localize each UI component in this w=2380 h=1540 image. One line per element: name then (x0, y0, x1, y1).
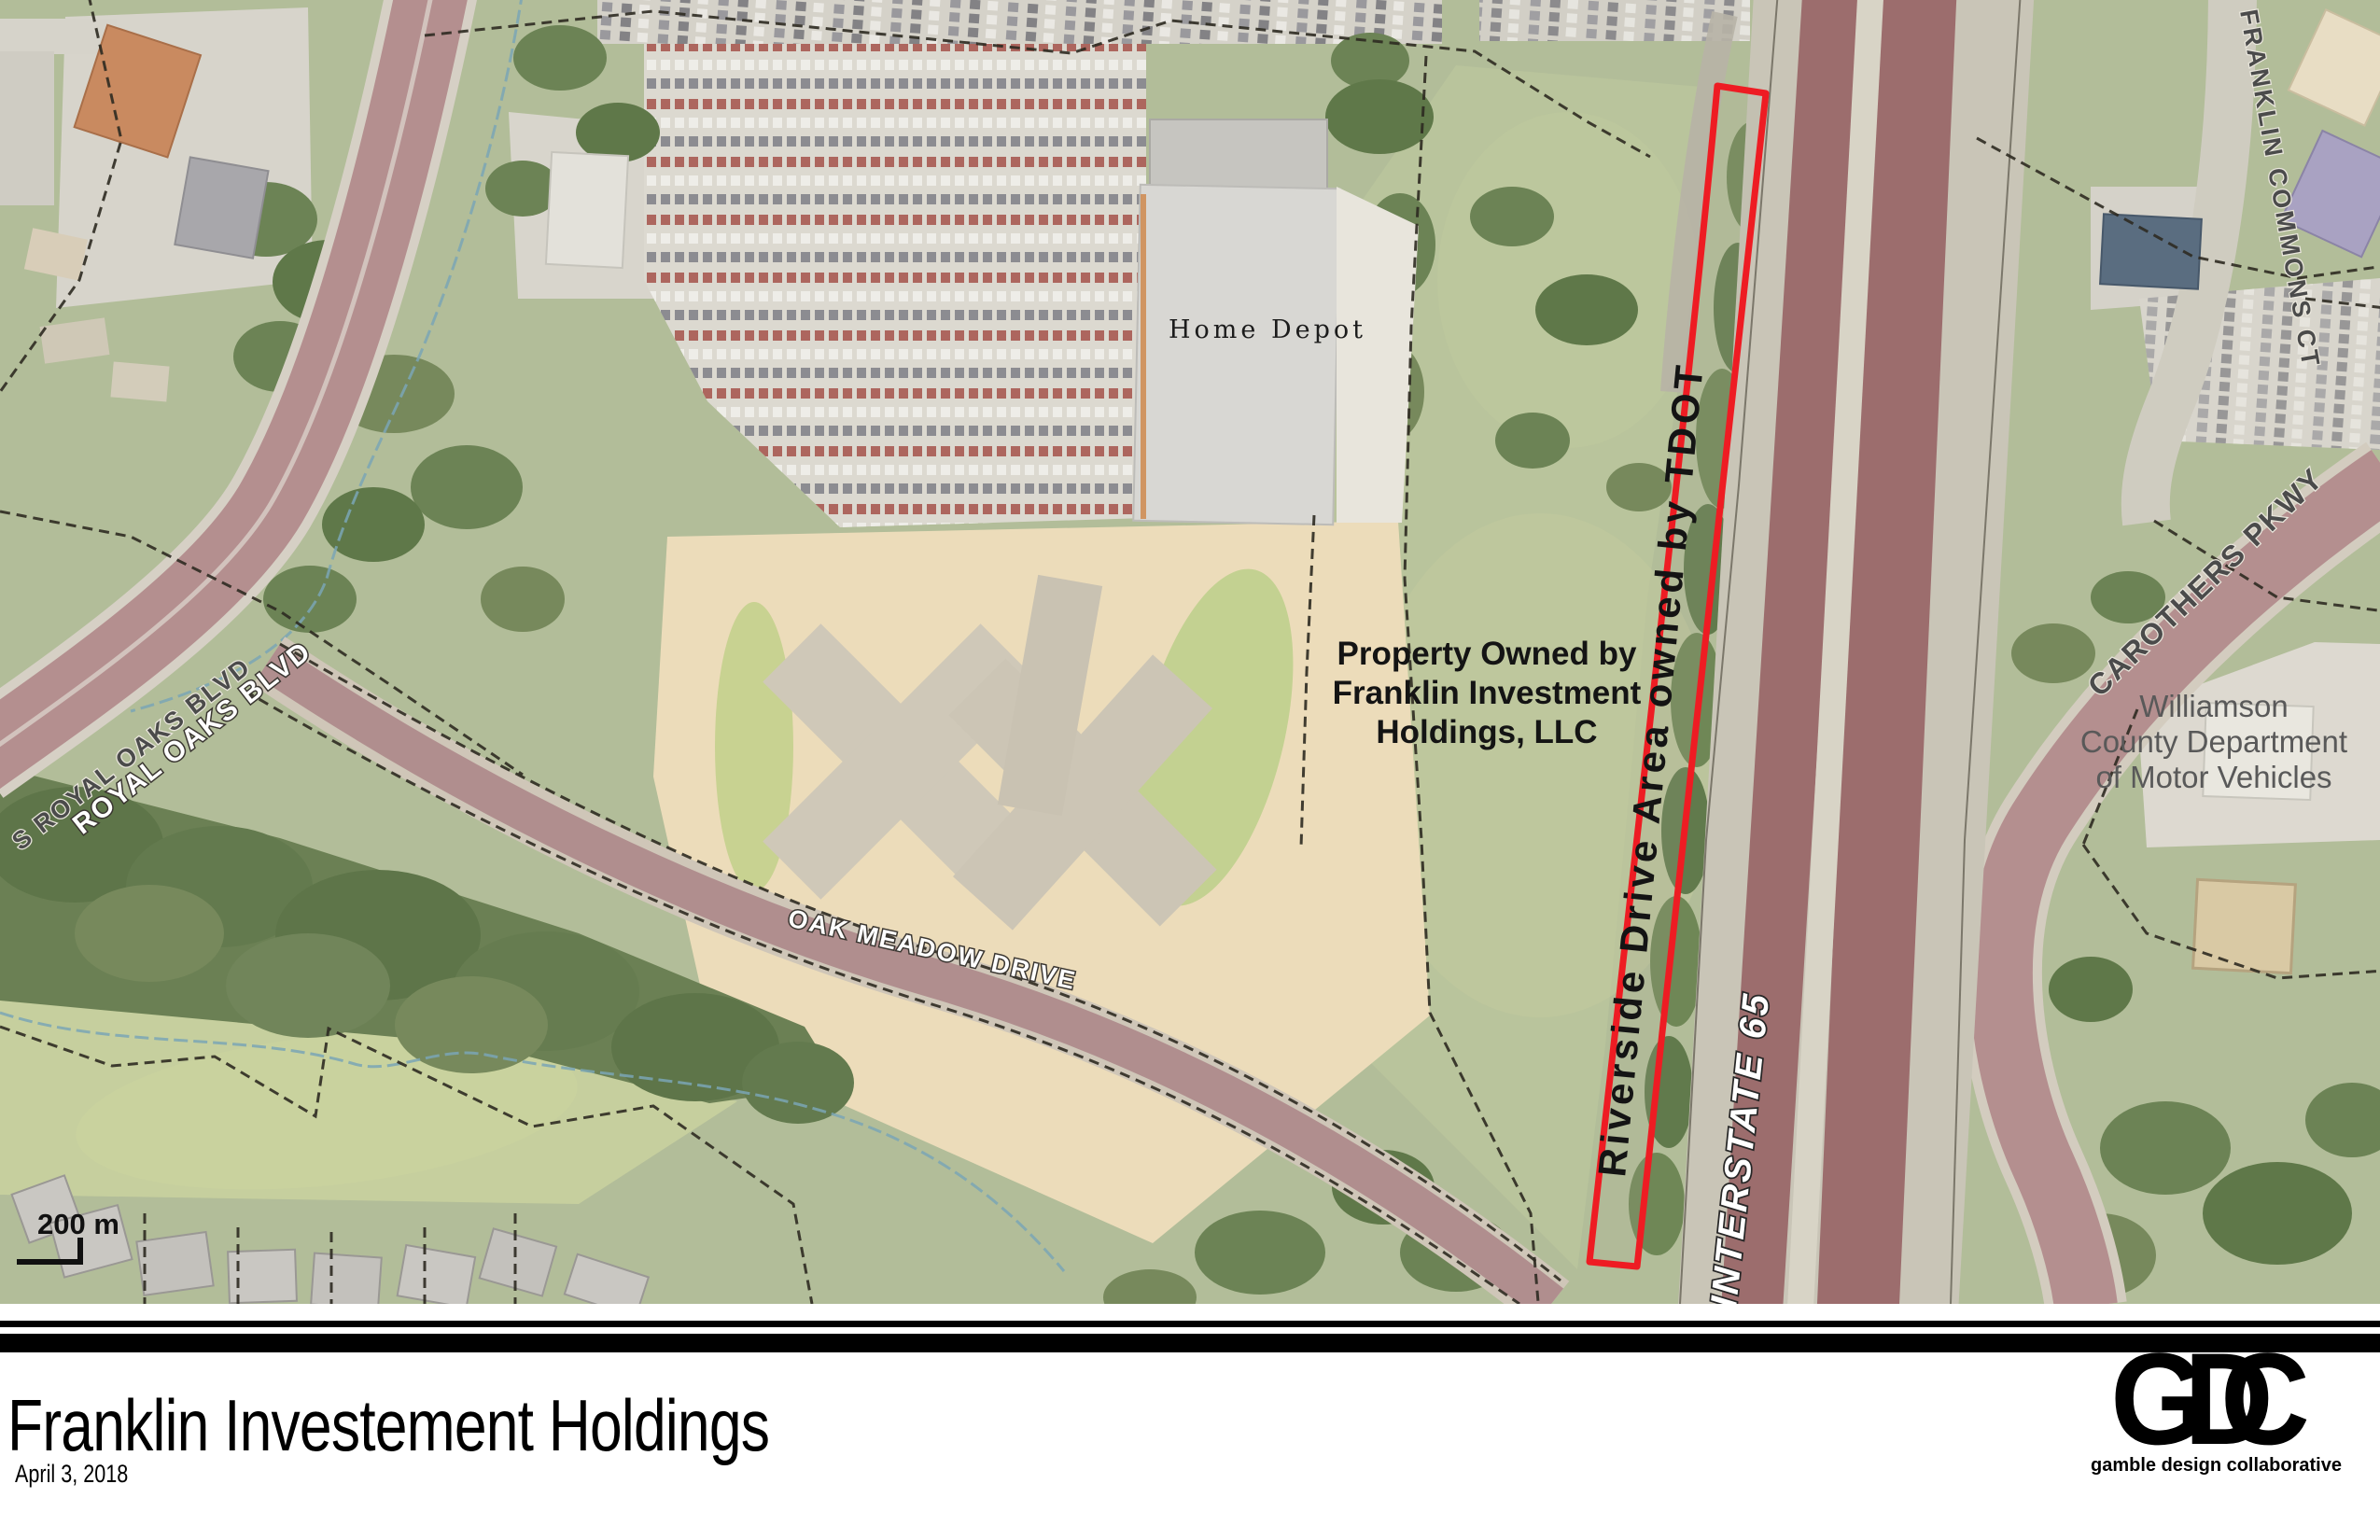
page-title: Franklin Investement Holdings (7, 1389, 769, 1462)
scale-bar-label: 200 m (37, 1208, 119, 1240)
label-property-line3: Holdings, LLC (1376, 714, 1597, 750)
label-property-line1: Property Owned by (1337, 636, 1637, 672)
gdc-logo: GDC gamble design collaborative (2091, 1334, 2330, 1477)
label-property-line2: Franklin Investment (1333, 675, 1642, 711)
divider-thin (0, 1321, 2380, 1327)
label-property-owner: Property Owned by Franklin Investment Ho… (1333, 636, 1642, 750)
road-interstate-65 (1751, 0, 1916, 1304)
aerial-map: 200 m Home Depot Property Owned by Frank… (0, 0, 2380, 1304)
gdc-letter-c: C (2220, 1325, 2310, 1472)
label-dmv-line3: of Motor Vehicles (2095, 760, 2331, 794)
label-dmv-line1: Williamson (2139, 689, 2289, 723)
gdc-logo-letters: GDC (2096, 1334, 2323, 1464)
divider-thick (0, 1334, 2380, 1352)
date-label: April 3, 2018 (15, 1460, 128, 1489)
pavement-strip (0, 51, 54, 205)
label-home-depot: Home Depot (1169, 315, 1366, 344)
top-strip-cars (597, 0, 1442, 44)
label-dmv-line2: County Department (2080, 724, 2347, 759)
